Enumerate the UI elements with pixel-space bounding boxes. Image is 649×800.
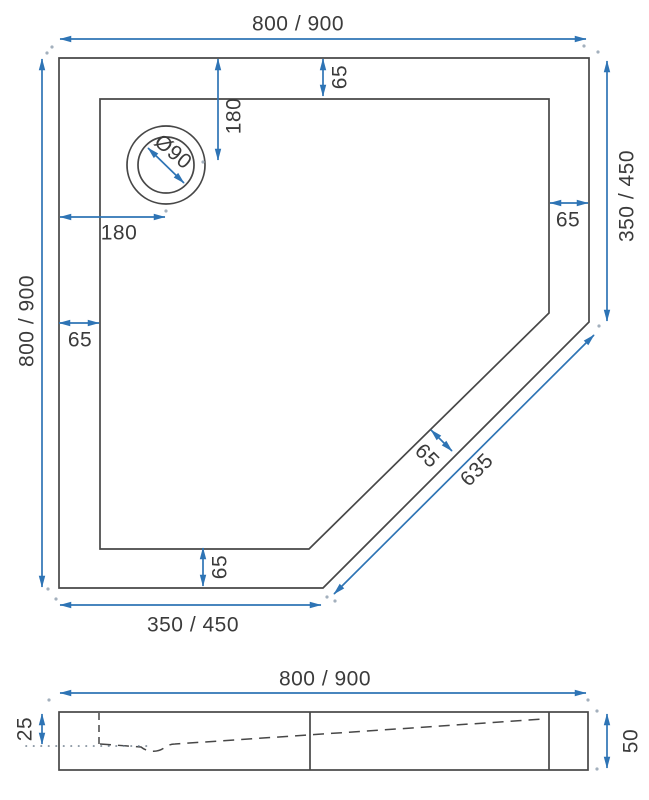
technical-drawing-page: Ø90 800 / 900 800 / 900 350 / 450 350 / …: [0, 0, 649, 800]
dim-label-right-side: 350 / 450: [616, 150, 639, 242]
dim-label-overall-height: 800 / 900: [16, 275, 39, 367]
dim-label-section-width: 800 / 900: [279, 668, 371, 691]
section-slope-hidden-line: [100, 719, 544, 751]
dim-label-rim-right: 65: [556, 209, 580, 232]
drain-diameter-label: Ø90: [150, 130, 196, 174]
dim-label-diagonal-side: 635: [456, 449, 498, 491]
dim-label-bottom-side: 350 / 450: [147, 614, 239, 637]
dim-label-rim-left: 65: [68, 329, 92, 352]
dim-label-overall-width: 800 / 900: [252, 13, 344, 36]
shower-tray-technical-drawing: Ø90 800 / 900 800 / 900 350 / 450 350 / …: [0, 0, 649, 800]
top-view: Ø90 800 / 900 800 / 900 350 / 450 350 / …: [16, 13, 639, 637]
dim-label-rim-bottom: 65: [209, 555, 232, 579]
dim-label-rim-top: 65: [329, 65, 352, 89]
dim-line-diagonal-side: [334, 335, 594, 594]
section-body: [59, 712, 588, 770]
dim-label-rim-height: 25: [14, 717, 37, 741]
section-view: 800 / 900 25 50: [14, 668, 643, 771]
dim-label-drain-horizontal: 180: [101, 222, 138, 245]
dim-label-total-height: 50: [620, 729, 643, 753]
dim-label-drain-vertical: 180: [223, 98, 246, 135]
